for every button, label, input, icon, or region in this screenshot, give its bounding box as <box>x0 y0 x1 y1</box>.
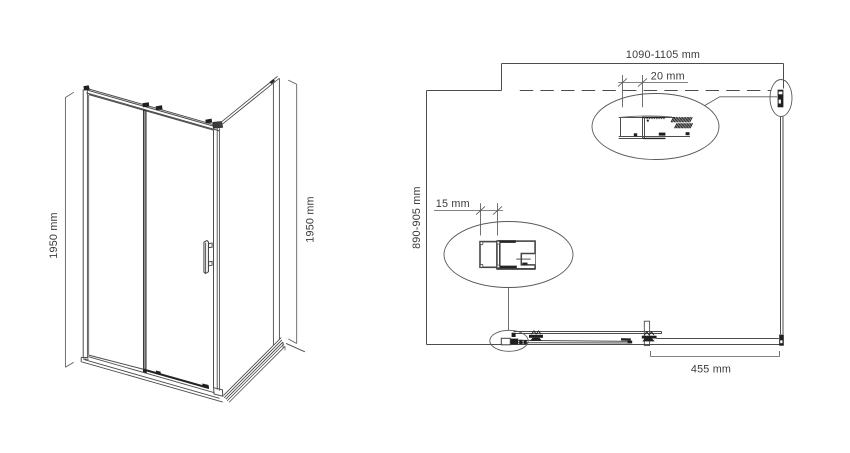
svg-text:1950 mm: 1950 mm <box>48 212 60 258</box>
svg-text:890-905 mm: 890-905 mm <box>411 186 423 249</box>
svg-text:15 mm: 15 mm <box>436 198 470 210</box>
svg-text:1950 mm: 1950 mm <box>305 196 317 242</box>
svg-text:20 mm: 20 mm <box>651 70 685 82</box>
svg-text:1090-1105 mm: 1090-1105 mm <box>626 49 700 61</box>
svg-text:455 mm: 455 mm <box>691 363 731 375</box>
